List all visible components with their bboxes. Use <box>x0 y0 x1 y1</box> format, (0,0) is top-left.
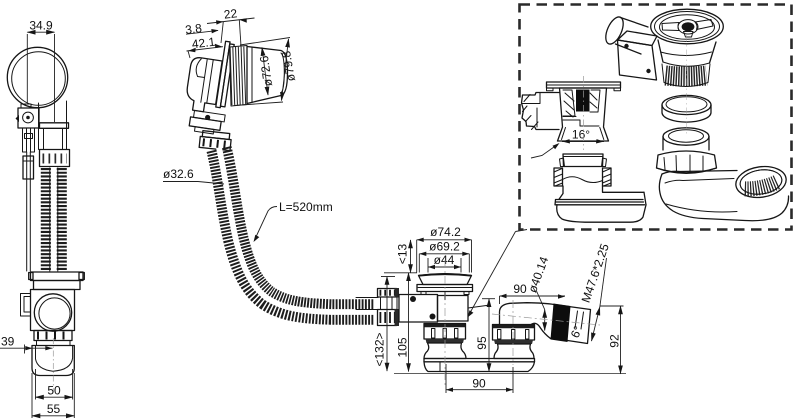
svg-text:ø74.2: ø74.2 <box>430 225 461 239</box>
svg-text:39: 39 <box>1 335 15 349</box>
svg-text:92: 92 <box>608 334 622 348</box>
svg-text:ø40.14: ø40.14 <box>525 254 551 294</box>
svg-text:22: 22 <box>223 6 238 22</box>
svg-text:<13: <13 <box>396 243 410 264</box>
svg-text:ø44: ø44 <box>434 253 455 267</box>
svg-text:ø32.6: ø32.6 <box>163 167 194 181</box>
svg-text:90: 90 <box>472 377 486 391</box>
svg-text:16°: 16° <box>572 128 590 142</box>
svg-text:L=520mm: L=520mm <box>279 200 333 214</box>
svg-text:55: 55 <box>47 402 61 416</box>
svg-text:34.9: 34.9 <box>29 19 53 33</box>
svg-text:6°: 6° <box>568 324 586 340</box>
svg-text:<132>: <132> <box>373 332 387 366</box>
svg-text:50: 50 <box>47 384 61 398</box>
svg-text:M47.6*2.25: M47.6*2.25 <box>579 242 612 305</box>
svg-text:3.8: 3.8 <box>184 21 203 37</box>
svg-text:105: 105 <box>396 337 410 357</box>
svg-text:ø79.8: ø79.8 <box>279 50 298 83</box>
svg-text:95: 95 <box>475 336 489 350</box>
svg-text:ø69.2: ø69.2 <box>429 240 460 254</box>
